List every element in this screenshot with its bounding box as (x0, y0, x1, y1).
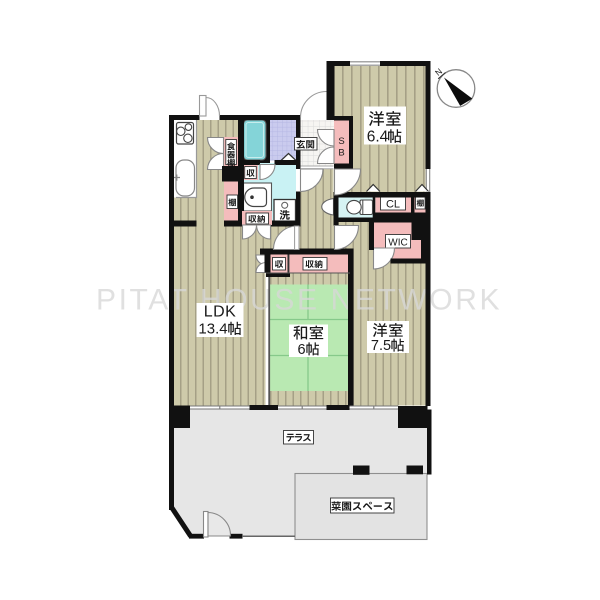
svg-text:LDK: LDK (204, 304, 237, 321)
svg-text:13.4: 13.4 (198, 321, 227, 338)
svg-text:S: S (338, 136, 344, 147)
svg-text:CL: CL (386, 198, 400, 210)
svg-text:WIC: WIC (388, 237, 407, 248)
svg-text:6.4: 6.4 (367, 129, 389, 146)
svg-text:PITAT HOUSE NETWORK: PITAT HOUSE NETWORK (96, 284, 502, 317)
svg-text:B: B (338, 148, 344, 159)
svg-text:7.5: 7.5 (371, 338, 391, 354)
svg-text:6: 6 (297, 342, 305, 358)
